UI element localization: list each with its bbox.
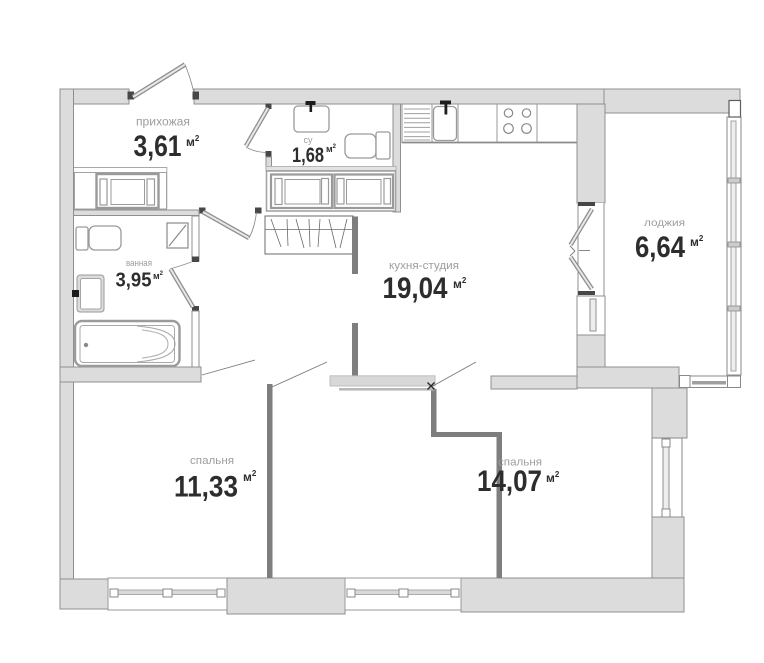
svg-text:лоджия: лоджия: [644, 217, 685, 229]
svg-text:3,61: 3,61: [134, 130, 182, 163]
svg-text:прихожая: прихожая: [136, 117, 190, 129]
svg-text:спальня: спальня: [190, 455, 234, 467]
svg-text:6,64: 6,64: [635, 231, 685, 264]
svg-text:14,07: 14,07: [477, 465, 542, 498]
svg-text:кухня-студия: кухня-студия: [389, 260, 459, 272]
svg-text:3,95: 3,95: [116, 270, 152, 292]
svg-text:ванная: ванная: [126, 258, 152, 268]
svg-text:1,68: 1,68: [292, 144, 324, 167]
svg-text:19,04: 19,04: [383, 272, 448, 305]
svg-text:11,33: 11,33: [174, 471, 238, 504]
